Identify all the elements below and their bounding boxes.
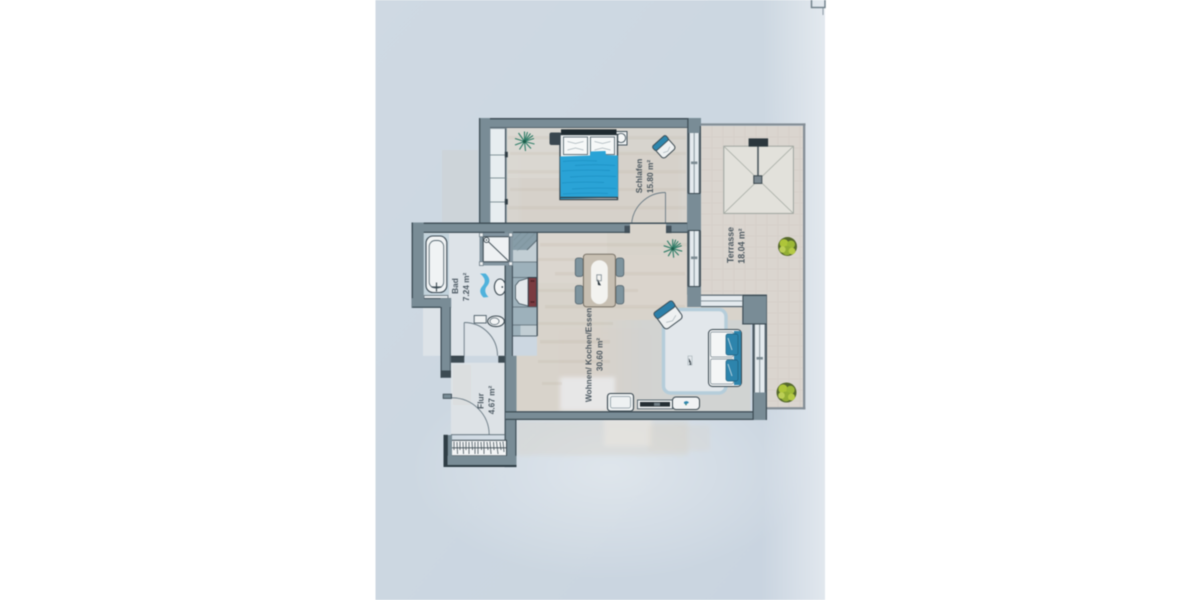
svg-text:Schlafen: Schlafen [634,159,644,194]
svg-text:4.67 m²: 4.67 m² [487,385,497,414]
svg-text:7.24 m²: 7.24 m² [461,272,471,301]
svg-text:Flur: Flur [476,392,486,408]
svg-text:Terrasse: Terrasse [726,227,736,263]
svg-text:30.60 m²: 30.60 m² [595,338,605,371]
svg-text:Wohnen/ Kochen/Essen: Wohnen/ Kochen/Essen [584,308,594,402]
svg-text:18.04 m²: 18.04 m² [737,228,747,263]
svg-text:Bad: Bad [450,278,460,294]
svg-text:15.80 m²: 15.80 m² [645,160,655,193]
